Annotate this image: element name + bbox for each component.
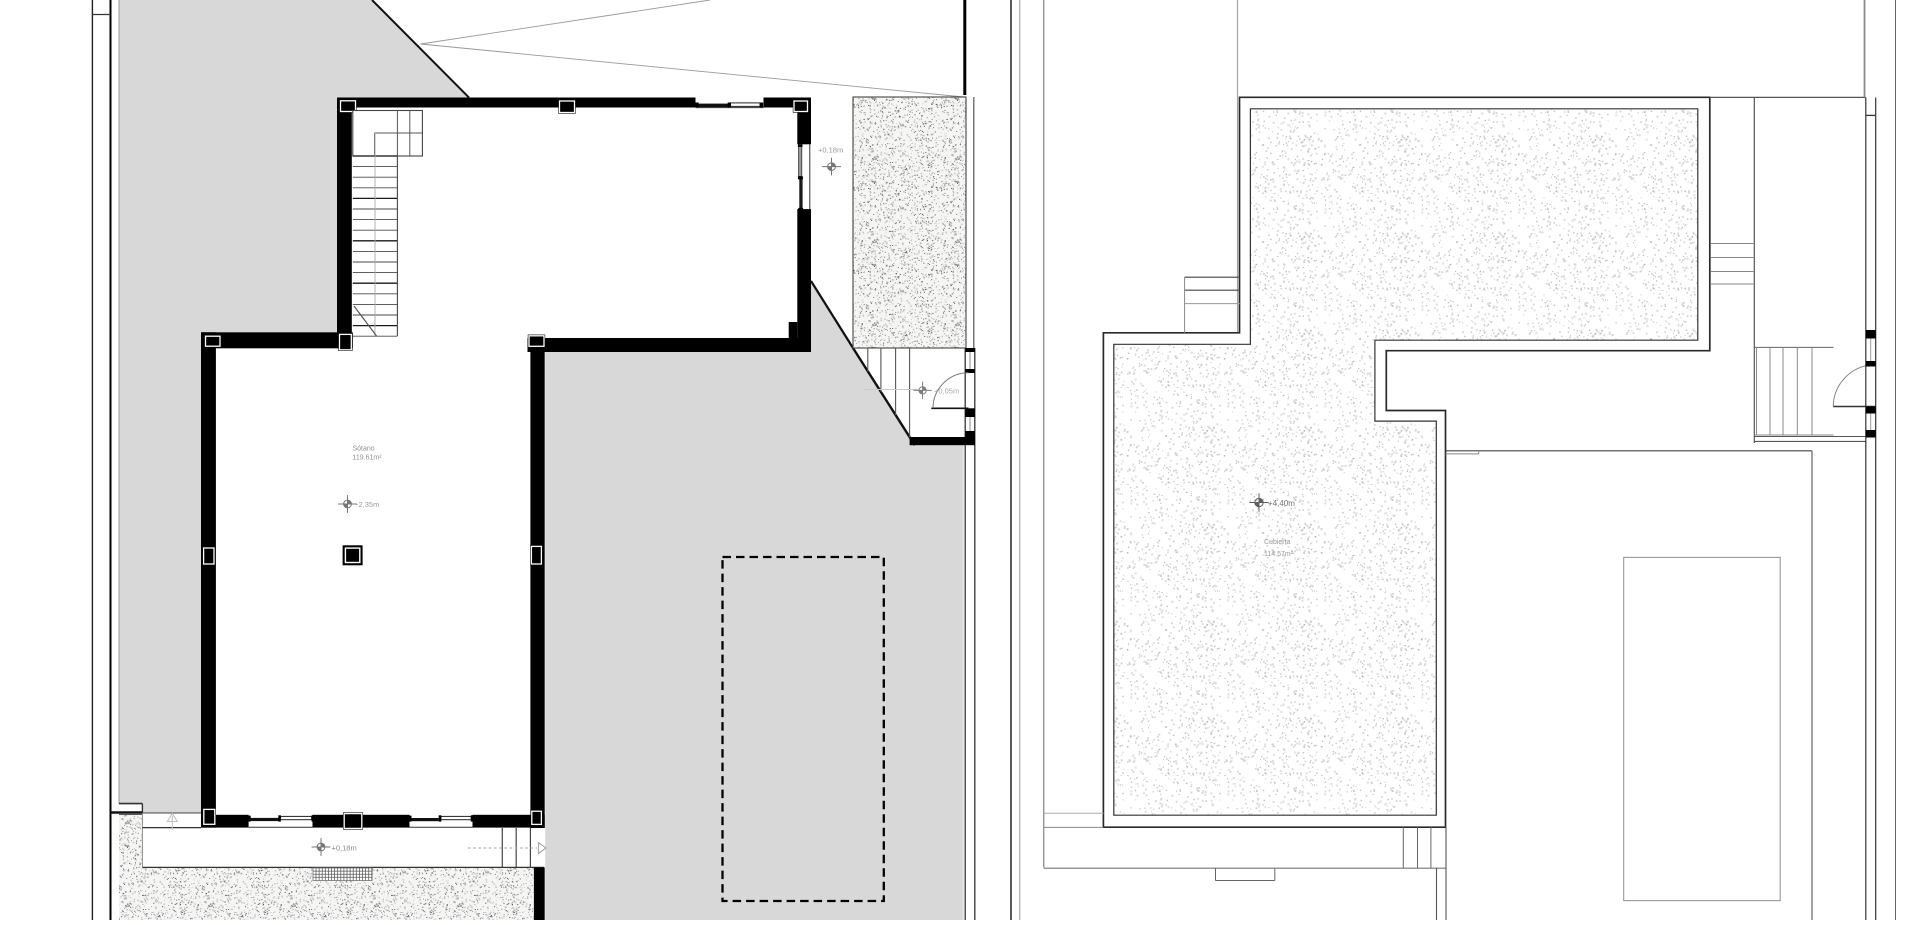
svg-text:+0,05m: +0,05m (934, 387, 959, 396)
svg-text:-2,35m: -2,35m (356, 500, 379, 509)
svg-text:Sótano: Sótano (353, 446, 375, 453)
svg-text:+4,40m: +4,40m (1268, 499, 1295, 508)
svg-text:119.61m²: 119.61m² (353, 455, 383, 462)
svg-text:+0,18m: +0,18m (332, 844, 357, 853)
svg-text:Cubierta: Cubierta (1264, 539, 1291, 546)
svg-text:+0,18m: +0,18m (818, 146, 843, 155)
svg-text:114.57m²: 114.57m² (1264, 551, 1294, 558)
